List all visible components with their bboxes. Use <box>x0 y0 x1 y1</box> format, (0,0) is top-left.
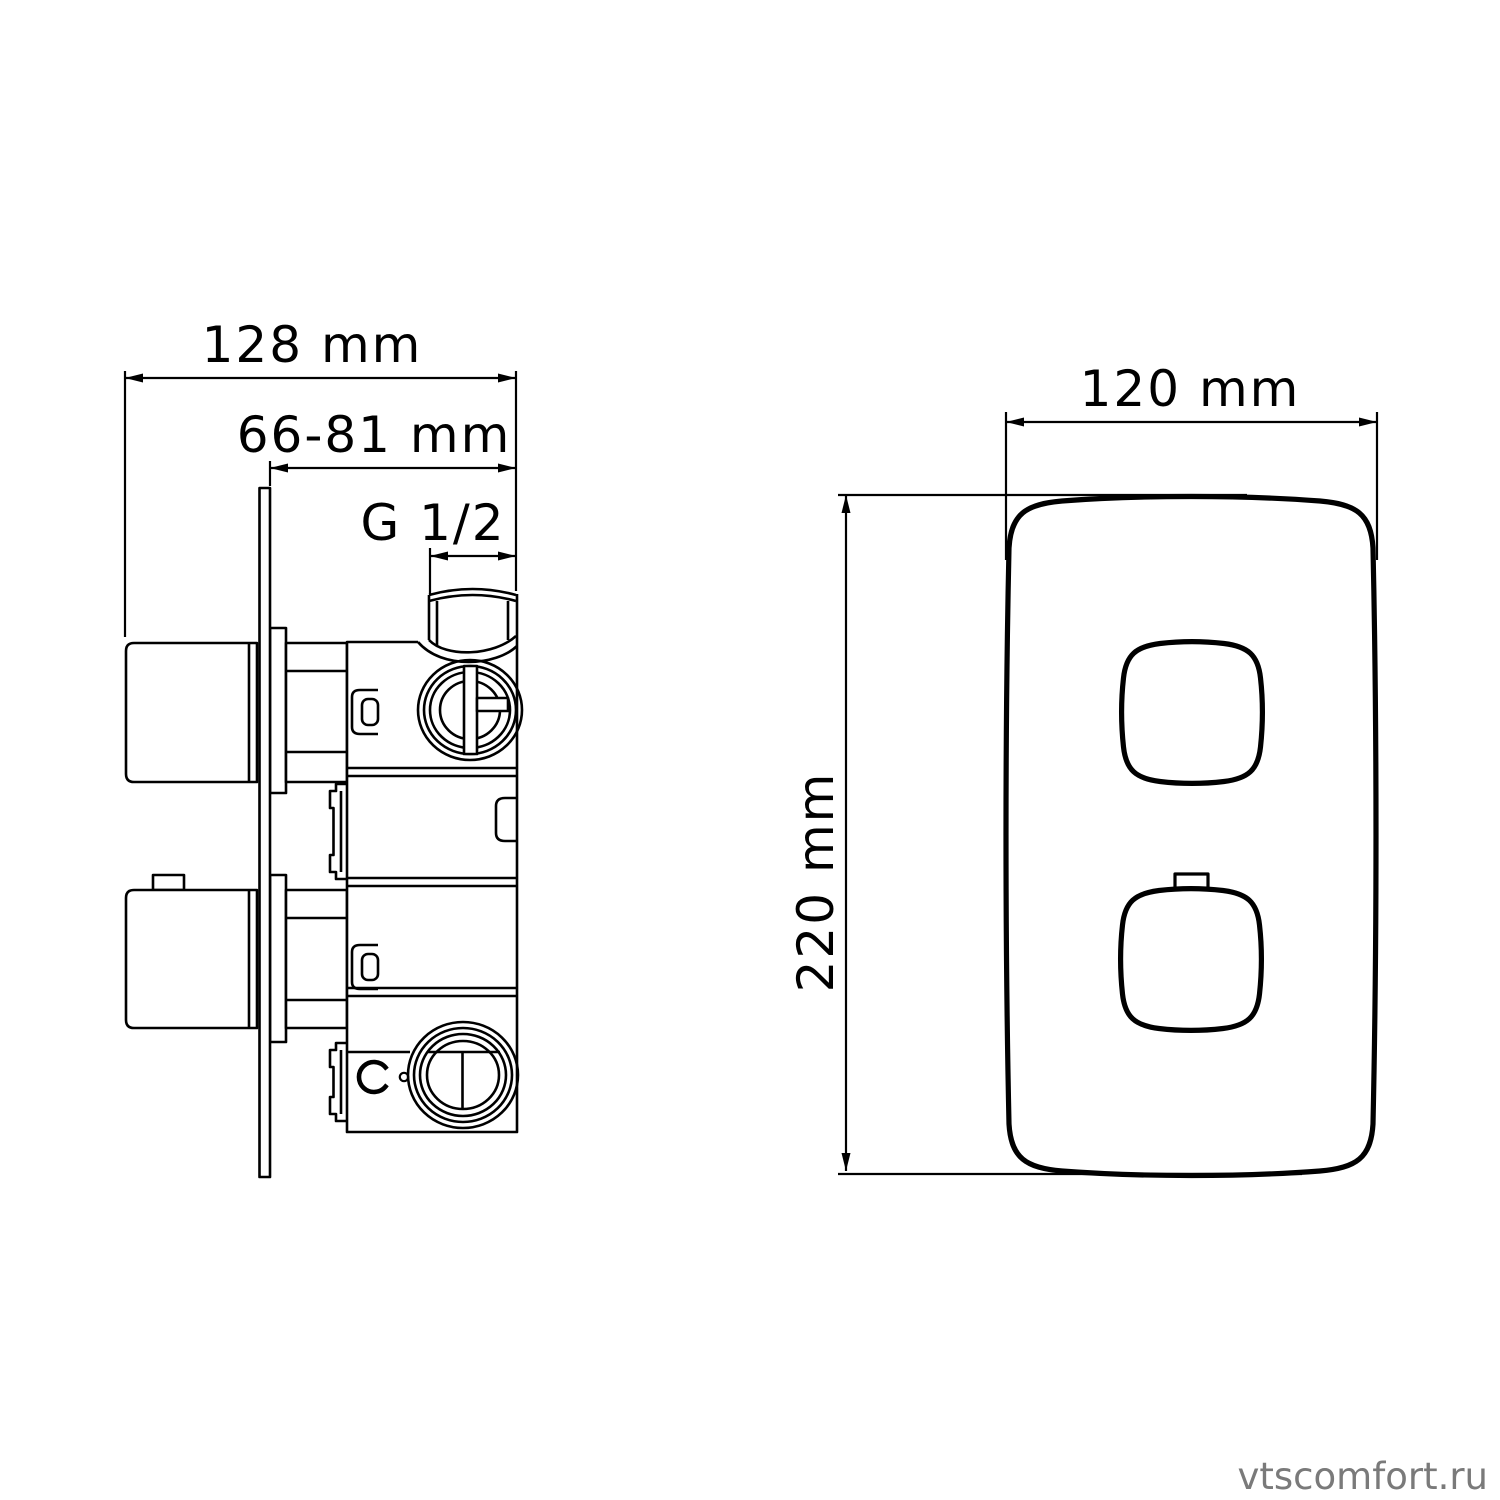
cartridge-upper <box>270 628 347 793</box>
pipe-top-inner-arc <box>429 595 516 601</box>
handle-lower-front <box>1121 874 1262 1030</box>
handle-upper-front <box>1122 642 1263 784</box>
dimension-thread-size: G 1/2 <box>360 494 516 594</box>
thread-size-label: G 1/2 <box>360 494 505 552</box>
handle-upper-side <box>126 643 257 782</box>
wall-plate-side <box>260 488 271 1177</box>
dim-220mm-label: 220 mm <box>787 772 845 993</box>
handle-tab-side <box>153 875 184 890</box>
hex-nipple-bottom <box>330 1043 347 1121</box>
lower-collar <box>270 875 286 1042</box>
hex-nipple-middle <box>330 784 347 879</box>
port-cross-bar <box>477 698 508 711</box>
port-slot-bar <box>464 666 477 754</box>
watermark-text: vtscomfort.ru <box>1237 1455 1488 1498</box>
technical-drawing-canvas: 128 mm 66-81 mm G 1/2 120 mm 220 mm vtsc… <box>0 0 1500 1500</box>
front-view <box>1006 497 1376 1176</box>
dim-66-81mm-label: 66-81 mm <box>237 406 512 464</box>
valve-body <box>330 589 522 1132</box>
dimension-wall-depth-range: 66-81 mm <box>237 406 516 486</box>
dim-6681-lines <box>270 461 516 486</box>
dim-120mm-label: 120 mm <box>1080 360 1301 418</box>
trim-plate <box>1006 497 1376 1176</box>
side-view <box>126 488 522 1177</box>
dim-128mm-label: 128 mm <box>202 316 423 374</box>
handle-lower-side <box>126 875 257 1028</box>
upper-collar <box>270 628 286 793</box>
cartridge-lower <box>270 875 347 1042</box>
lower-stem-housing <box>286 890 347 1028</box>
upper-stem-housing <box>286 643 347 782</box>
